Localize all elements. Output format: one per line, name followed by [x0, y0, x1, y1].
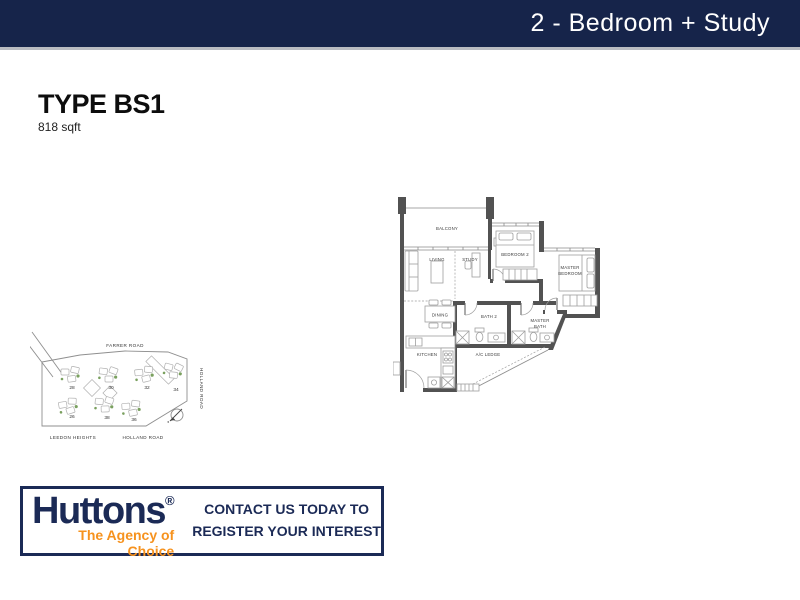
brochure-page: 2 - Bedroom + Study TYPE BS1 818 sqft — [0, 0, 800, 600]
page-title: 2 - Bedroom + Study — [531, 0, 770, 47]
site-buildings — [57, 360, 184, 417]
contact-cta: CONTACT US TODAY TO REGISTER YOUR INTERE… — [192, 499, 381, 542]
room-label-dining: DINING — [432, 313, 449, 318]
header-divider — [0, 47, 800, 50]
brand-name: Huttons® — [32, 483, 186, 529]
road-label-leedon-heights: LEEDON HEIGHTS — [50, 435, 96, 440]
room-label-bedroom2: BEDROOM 2 — [501, 252, 529, 257]
header-bar: 2 - Bedroom + Study — [0, 0, 800, 47]
agency-logo-box: Huttons® The Agency of Choice CONTACT US… — [20, 486, 384, 556]
room-label-master-bedroom-2: BEDROOM — [558, 271, 582, 276]
block-number: 38 — [104, 415, 110, 421]
cta-line-1: CONTACT US TODAY TO — [192, 499, 381, 521]
room-label-living: LIVING — [429, 257, 445, 262]
site-road-labels: FARRER ROAD HOLLAND ROAD LEEDON HEIGHTS … — [50, 343, 204, 440]
floorplan-drawing: BALCONY LIVING STUDY BEDROOM 2 MASTER BE… — [393, 193, 605, 405]
huttons-logo: Huttons® The Agency of Choice — [23, 483, 186, 559]
road-label-holland-side: HOLLAND ROAD — [199, 368, 204, 409]
block-number: 36 — [131, 417, 137, 423]
block-number: 32 — [144, 385, 150, 391]
room-label-master-bath-1: MASTER — [530, 318, 549, 323]
block-number: 30 — [108, 385, 114, 391]
room-label-ac-ledge: A/C LEDGE — [476, 352, 501, 357]
block-number: 34 — [173, 387, 179, 393]
road-label-holland-bottom: HOLLAND ROAD — [122, 435, 163, 440]
room-label-study: STUDY — [462, 257, 478, 262]
registered-mark: ® — [165, 493, 175, 508]
cta-line-2: REGISTER YOUR INTEREST — [192, 521, 381, 543]
brand-text: Huttons — [32, 490, 165, 532]
site-map: 28 30 32 34 26 38 36 FARRER ROAD HOLLAND… — [30, 330, 220, 450]
road-label-farrer: FARRER ROAD — [106, 343, 144, 348]
room-label-kitchen: KITCHEN — [417, 352, 437, 357]
room-label-master-bath-2: BATH — [534, 324, 546, 329]
unit-info: TYPE BS1 818 sqft — [38, 90, 165, 134]
unit-area-label: 818 sqft — [38, 120, 165, 134]
block-number: 28 — [69, 385, 75, 391]
block-number: 26 — [69, 414, 75, 420]
unit-type-label: TYPE BS1 — [38, 90, 165, 118]
room-label-balcony: BALCONY — [436, 226, 458, 231]
room-label-bath2: BATH 2 — [481, 314, 497, 319]
site-structures — [84, 356, 175, 400]
room-label-master-bedroom-1: MASTER — [560, 265, 579, 270]
